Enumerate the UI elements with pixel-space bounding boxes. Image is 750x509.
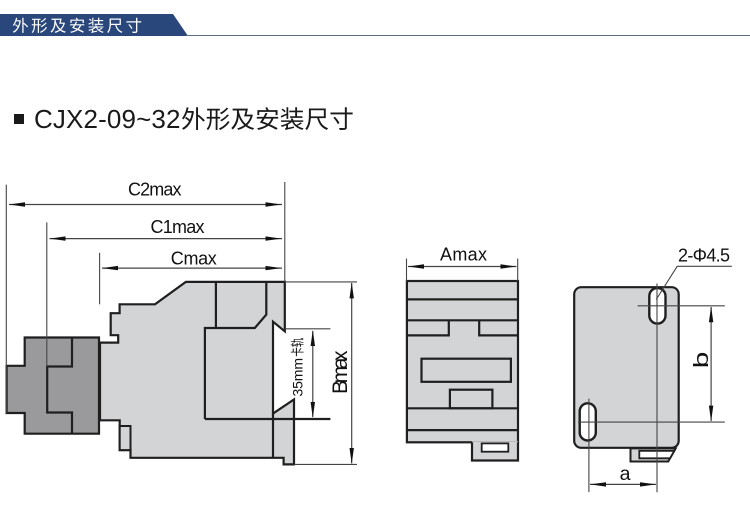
svg-text:C1max: C1max [151,217,205,237]
svg-text:Cmax: Cmax [171,248,217,268]
svg-text:CJX2-09~32: CJX2-09~32 [34,104,181,134]
svg-text:2-Φ4.5: 2-Φ4.5 [678,246,730,266]
svg-text:Bmax: Bmax [329,350,352,394]
svg-text:35mm: 35mm [290,358,306,397]
svg-text:Amax: Amax [440,244,487,264]
svg-text:b: b [691,352,713,369]
svg-text:C2max: C2max [128,179,182,199]
svg-text:a: a [620,463,631,485]
